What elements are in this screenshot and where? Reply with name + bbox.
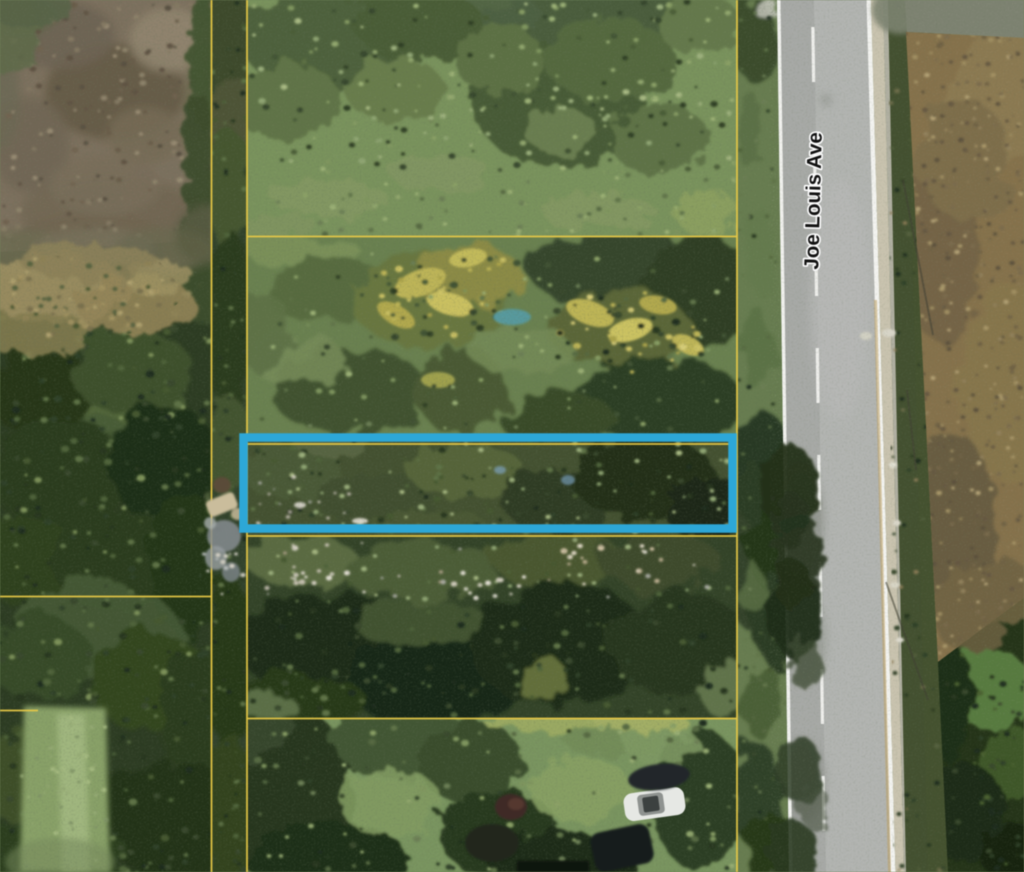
svg-text:Joe Louis Ave: Joe Louis Ave [800, 132, 827, 270]
